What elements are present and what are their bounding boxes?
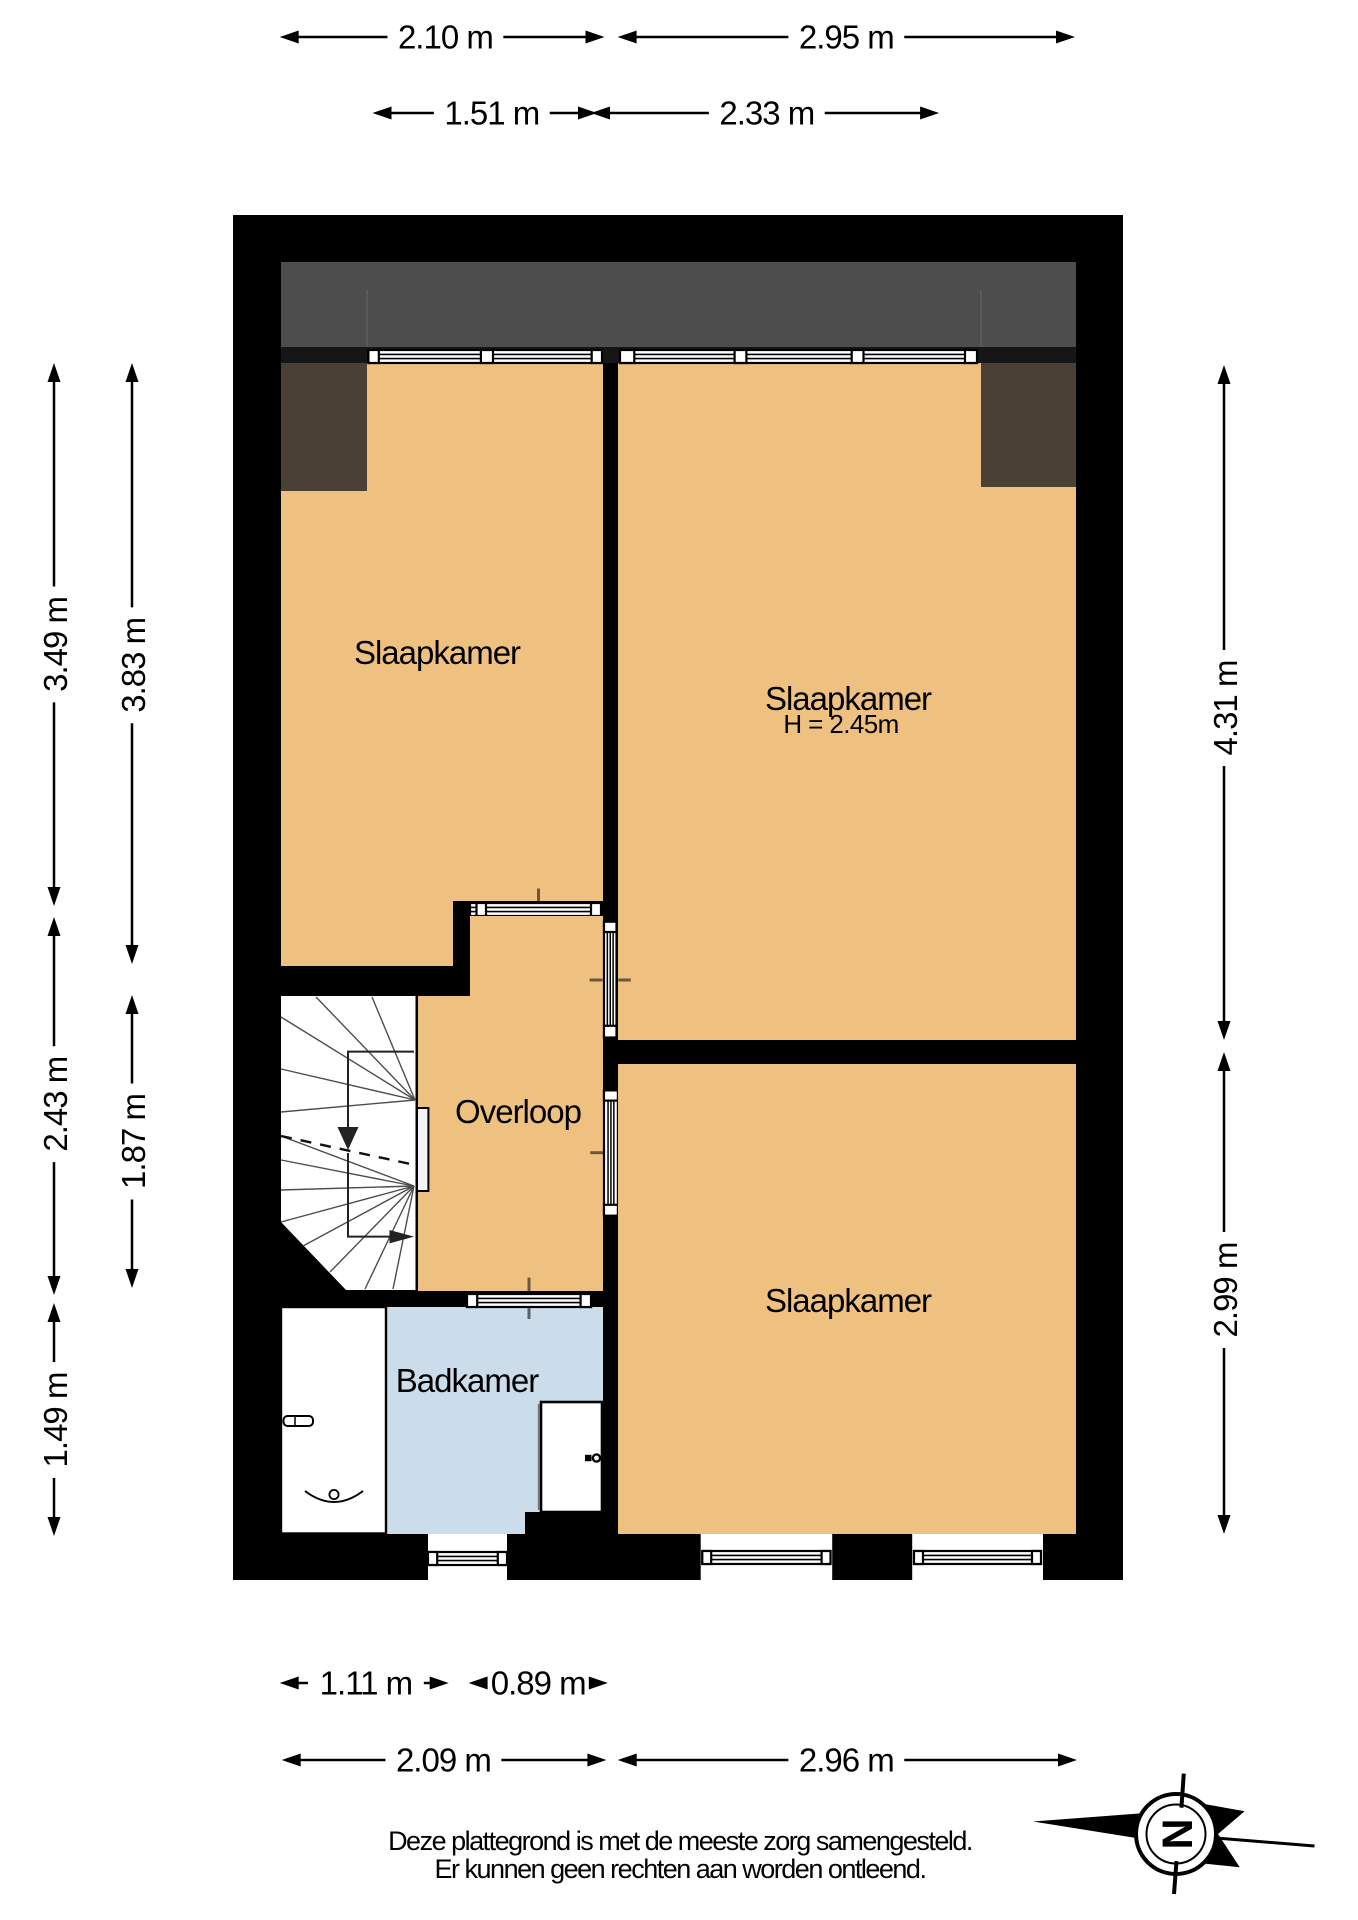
svg-text:3.49 m: 3.49 m xyxy=(37,597,74,692)
svg-text:2.99 m: 2.99 m xyxy=(1207,1243,1244,1338)
svg-text:N: N xyxy=(1154,1818,1202,1849)
svg-text:Overloop: Overloop xyxy=(455,1093,581,1130)
svg-text:Slaapkamer: Slaapkamer xyxy=(354,634,521,671)
svg-text:Slaapkamer: Slaapkamer xyxy=(765,1282,932,1319)
svg-text:H = 2.45m: H = 2.45m xyxy=(783,709,898,739)
svg-text:Er kunnen geen rechten aan wor: Er kunnen geen rechten aan worden ontlee… xyxy=(435,1854,926,1884)
svg-text:3.83 m: 3.83 m xyxy=(115,618,152,713)
svg-text:2.43 m: 2.43 m xyxy=(37,1057,74,1152)
svg-text:2.96 m: 2.96 m xyxy=(799,1742,894,1779)
svg-text:1.87 m: 1.87 m xyxy=(115,1094,152,1189)
svg-text:Badkamer: Badkamer xyxy=(396,1362,539,1399)
svg-text:0.89 m: 0.89 m xyxy=(491,1665,586,1702)
svg-text:1.51 m: 1.51 m xyxy=(444,95,539,132)
svg-text:2.33 m: 2.33 m xyxy=(719,95,814,132)
svg-text:2.95 m: 2.95 m xyxy=(799,19,894,56)
svg-text:4.31 m: 4.31 m xyxy=(1207,661,1244,756)
svg-text:2.10 m: 2.10 m xyxy=(398,19,493,56)
svg-text:1.11 m: 1.11 m xyxy=(320,1665,412,1702)
svg-text:Deze plattegrond is met de mee: Deze plattegrond is met de meeste zorg s… xyxy=(388,1826,972,1856)
svg-text:1.49 m: 1.49 m xyxy=(37,1373,74,1468)
svg-text:2.09 m: 2.09 m xyxy=(396,1742,491,1779)
